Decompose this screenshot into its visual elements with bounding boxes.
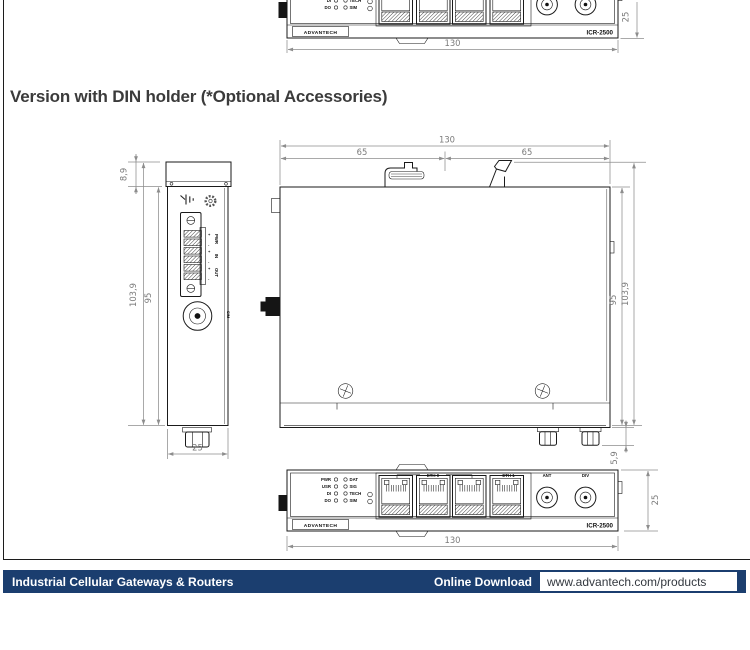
terminal-label-pwr: PWR [214, 234, 219, 245]
dim-depth: 25 [621, 12, 631, 23]
front-view-bottom [279, 465, 623, 537]
dim-total-height: 103,9 [128, 283, 138, 307]
sim-label: SIM [226, 311, 231, 319]
dim-half-width: 65 [357, 147, 368, 157]
side-port-edge [272, 199, 281, 213]
dim-width: 130 [445, 38, 461, 48]
dim-depth: 25 [650, 495, 660, 506]
terminal-label-out: OUT [214, 268, 219, 277]
dim-total-height: 103,9 [620, 282, 630, 306]
sim-connector: SIM [183, 302, 231, 331]
dim-body-height: 95 [608, 295, 618, 306]
side-antenna-edge [266, 297, 281, 316]
online-download-label: Online Download [434, 575, 532, 589]
polarity-mark: + [208, 232, 211, 237]
footer-category-label: Industrial Cellular Gateways & Routers [12, 575, 233, 589]
polarity-mark: + [208, 266, 211, 271]
screw [336, 381, 355, 400]
terminal-block: + - + - + - PWR IN OUT [181, 213, 219, 297]
front-view-top-dimensions: 130 25 [287, 2, 644, 53]
dim-stub: 5,9 [609, 451, 619, 464]
footer-url-link[interactable]: www.advantech.com/products [540, 572, 737, 591]
dim-width: 130 [445, 535, 461, 545]
ground-symbol [181, 195, 194, 205]
side-antenna-tip [261, 302, 266, 312]
front-view-top-partial [279, 0, 623, 44]
terminal-label-in: IN [214, 254, 219, 258]
polarity-mark: + [208, 249, 211, 254]
top-view-dimensions-height: 95 103,9 5,9 [514, 162, 646, 464]
dim-half-width: 65 [522, 147, 533, 157]
footer-bar: Industrial Cellular Gateways & Routers O… [3, 570, 746, 593]
dim-width: 130 [439, 135, 455, 145]
dim-din-offset: 8,9 [119, 168, 129, 181]
datasheet-page: Version with DIN holder (*Optional Acces… [0, 0, 750, 650]
din-clip-right [490, 161, 512, 188]
device-top-view: 130 65 65 95 103,9 5,9 [261, 135, 647, 465]
din-clip-left [385, 163, 424, 188]
dim-body-height: 95 [143, 293, 153, 304]
technical-drawing: PWR USR DI DO DAT SIG TECH SIM [0, 0, 750, 650]
polarity-mark: - [208, 260, 210, 265]
polarity-mark: - [208, 243, 210, 248]
dim-depth: 25 [192, 443, 203, 453]
polarity-mark: - [208, 277, 210, 282]
top-view-dimensions-width: 130 65 65 [280, 135, 610, 186]
grounding-screw-icon [206, 196, 216, 206]
screw [533, 381, 552, 400]
device-side-view: + - + - + - PWR IN OUT SIM [119, 154, 232, 459]
